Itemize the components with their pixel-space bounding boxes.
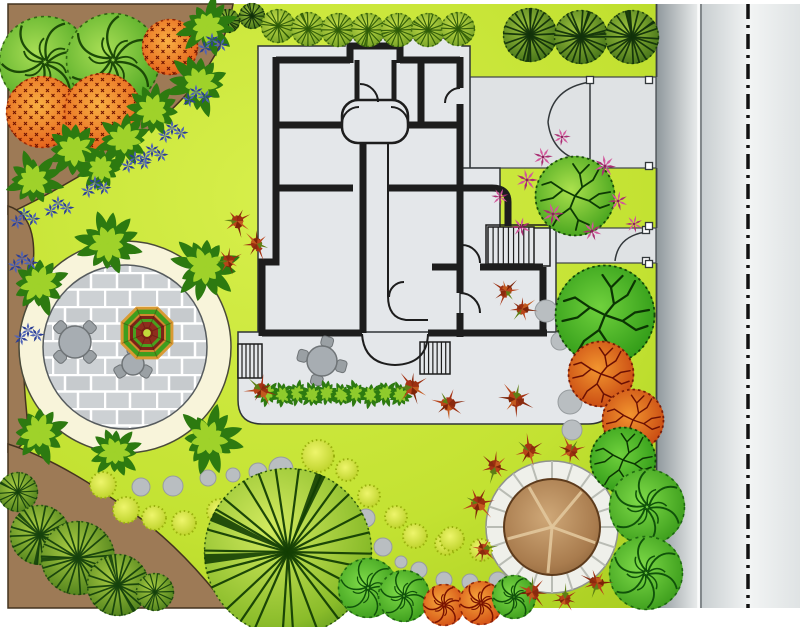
- plan-canvas: Residential garden landscape design plan…: [0, 0, 800, 627]
- shrub-ball: [336, 459, 358, 481]
- shrub-ball: [142, 506, 166, 530]
- table-and-chairs: [52, 319, 97, 364]
- tree-crackle: [535, 156, 615, 236]
- shrub-ball: [385, 506, 407, 528]
- landscape-plan-svg: [0, 0, 800, 627]
- shrub-ball: [358, 485, 380, 507]
- stepping-stone: [200, 470, 216, 486]
- shrub-ball: [302, 440, 334, 472]
- tree-umbrella: [605, 10, 659, 64]
- tree-umbrella: [381, 13, 415, 47]
- stepping-stone: [374, 538, 392, 556]
- tree-swirl: [378, 570, 430, 622]
- road: [700, 4, 800, 608]
- shrub-ball: [172, 511, 196, 535]
- fence-post: [646, 261, 653, 268]
- stairs: [488, 227, 534, 264]
- tree-umbrella: [351, 13, 385, 47]
- tree-umbrella: [503, 8, 557, 62]
- tree-swirl: [492, 575, 536, 619]
- tree-swirl: [609, 469, 685, 545]
- path-band: [470, 77, 656, 168]
- stepping-stone: [395, 556, 407, 568]
- tree-umbrella: [441, 12, 475, 46]
- shrub-ball: [113, 497, 139, 523]
- stepping-stone: [562, 420, 582, 440]
- stepping-stone: [226, 468, 240, 482]
- tree-swirl: [423, 584, 465, 626]
- shrub-ball: [440, 527, 464, 551]
- fence-post: [646, 163, 653, 170]
- vestibule: [342, 100, 408, 143]
- tree-umbrella: [261, 9, 295, 43]
- patio-umbrella: [122, 308, 172, 358]
- tree-umbrella: [411, 13, 445, 47]
- fence-post: [587, 77, 594, 84]
- fence-post: [646, 77, 653, 84]
- fence-post: [646, 223, 653, 230]
- shrub-ball: [403, 524, 427, 548]
- tree-swirl: [609, 536, 683, 610]
- tree-umbrella: [321, 13, 355, 47]
- tree-umbrella: [136, 573, 174, 611]
- shrub-ball: [90, 472, 116, 498]
- stepping-stone: [535, 300, 557, 322]
- tree-umbrella: [554, 10, 608, 64]
- stepping-stone: [163, 476, 183, 496]
- tree-umbrella: [291, 12, 325, 46]
- stepping-stone: [132, 478, 150, 496]
